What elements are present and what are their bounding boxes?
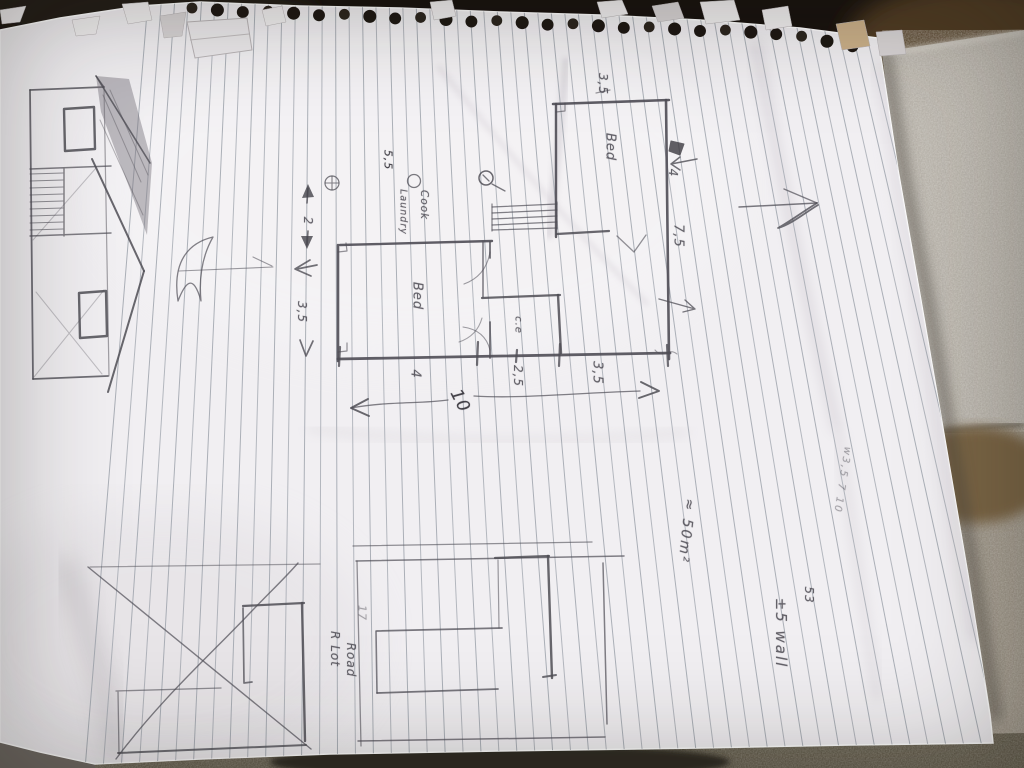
room-label-cook: Cook (418, 190, 430, 220)
dim-label-left-35: 3,5 (295, 301, 309, 323)
dim-label-bottom-35: 3,5 (590, 361, 605, 385)
note-label-55: 5,5 (382, 150, 395, 171)
room-label-bed-right: Bed (603, 133, 618, 161)
dim-label-top: 3,5 (596, 73, 610, 95)
dim-label-left-2: 2 (301, 217, 315, 226)
handwritten-labels: 3,5 Bed 5,5 Cook Laundry Bed c.e 2 3,5 4… (0, 0, 1024, 768)
road-label: Road (344, 643, 358, 678)
r-lot-label: R Lot (328, 631, 342, 667)
number-53-label: 53 (802, 586, 816, 603)
area-note-label: ≈ 50m² (675, 498, 698, 565)
room-label-ce: c.e (513, 316, 524, 334)
wall-note-label: ±5 wall (772, 598, 790, 669)
lot-number-label: 17 (356, 605, 369, 621)
room-label-bed-mid: Bed (410, 282, 425, 310)
margin-note-label: w3,5 7 10 (831, 446, 852, 514)
dim-label-right-75: 7,5 (671, 224, 686, 248)
dim-label-right-4: 4 (666, 169, 680, 178)
room-label-laundry: Laundry (398, 189, 409, 235)
photo-notebook-sketch: 3,5 Bed 5,5 Cook Laundry Bed c.e 2 3,5 4… (0, 0, 1024, 768)
dim-label-bottom-25: 2,5 (511, 365, 525, 387)
dim-label-total-10: 10 (446, 386, 475, 416)
dim-label-bottom-4: 4 (408, 369, 423, 378)
